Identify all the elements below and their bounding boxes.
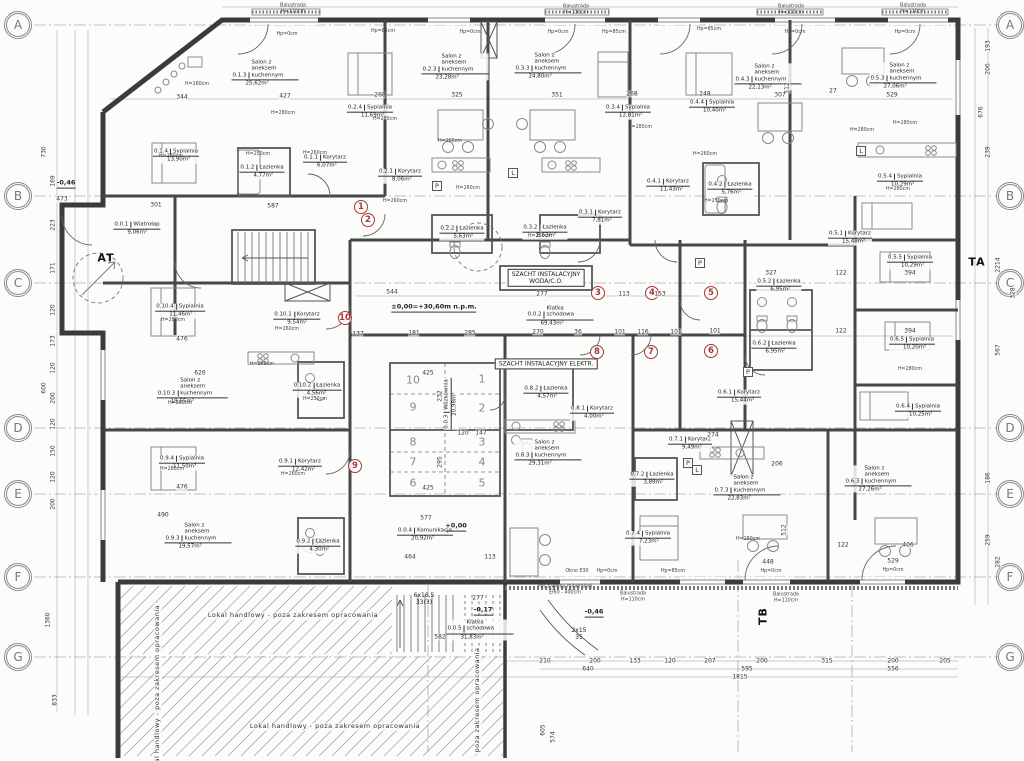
annotation: H=280cm xyxy=(850,128,874,134)
annotation: H=250cm xyxy=(528,234,552,240)
annotation: H=280cm xyxy=(898,367,922,373)
annotation: H=280cm xyxy=(736,537,760,543)
dimension-label: 171 xyxy=(50,262,57,273)
dimension-label: 833 xyxy=(52,694,59,705)
dimension-label: 206 xyxy=(771,461,782,468)
dimension-label: 133 xyxy=(629,658,640,665)
room-name: Korytarz xyxy=(848,231,871,237)
room-number: 0.6.5 xyxy=(890,337,907,343)
dimension-label: 232 xyxy=(437,390,444,401)
room-label-0-1-3: 0.1.3Salon z aneksem kuchennym25,62m² xyxy=(232,59,299,86)
room-label-0-5-3: 0.5.3Salon z aneksem kuchennym27,06m² xyxy=(870,62,937,89)
room-name: Salon z aneksem kuchennym xyxy=(185,522,231,541)
annotation: -0,46 xyxy=(57,180,76,189)
room-number: 0.6.3 xyxy=(846,478,863,484)
room-area: 4,57m² xyxy=(523,394,568,400)
room-area: 15,48m² xyxy=(828,239,872,245)
room-number: 0.5.5 xyxy=(888,255,905,261)
room-number: 0.9.1 xyxy=(279,459,296,465)
dimension-label: 268 xyxy=(626,91,637,98)
annotation: 6x16,5 33(3) xyxy=(414,592,435,606)
room-label-0-9-1: 0.9.1Korytarz12,42m² xyxy=(278,459,322,474)
room-area: 8,06m² xyxy=(378,177,422,183)
dimension-label: 101 xyxy=(614,329,625,336)
annotation: Lokal handlowy - poza zakresem opracowan… xyxy=(248,723,422,731)
annotation: H=280cm xyxy=(161,318,185,324)
dimension-label: 205 xyxy=(939,658,950,665)
storage-cell-number: 10 xyxy=(406,374,420,387)
room-number: 0.0.4 xyxy=(398,528,415,534)
dimension-label: 556 xyxy=(887,666,898,673)
room-name: Sypialnia xyxy=(897,174,922,180)
room-name: Łazienka xyxy=(771,341,795,347)
room-label-0-5-2: 0.5.2Łazienka6,95m² xyxy=(756,279,801,294)
room-label-0-3-3: 0.3.3Salon z aneksem kuchennym24,80m² xyxy=(515,52,582,79)
dimension-label: 351 xyxy=(551,92,562,99)
room-number: 0.4.4 xyxy=(690,100,707,106)
apartment-marker-2: 2 xyxy=(361,213,375,227)
grid-marker-e-right: E xyxy=(998,482,1022,506)
room-area: 11,43m² xyxy=(646,187,690,193)
dimension-label: 315 xyxy=(821,658,832,665)
annotation: H=260cm xyxy=(438,139,462,145)
dimension-label: 464 xyxy=(404,554,415,561)
grid-marker-a-left: A xyxy=(6,13,30,37)
room-label-0-6-4: 0.6.4Sypialnia10,25m² xyxy=(895,404,941,419)
room-area: 9,06m² xyxy=(113,230,160,236)
room-number: 0.7.2 xyxy=(630,472,647,478)
room-name: Łazienka xyxy=(776,279,800,285)
room-area: 6,95m² xyxy=(756,287,801,293)
room-name: Klatka schodowa xyxy=(467,620,513,633)
dimension-label: 120 xyxy=(50,362,57,373)
room-area: 22,13m² xyxy=(735,84,802,90)
room-label-0-7-1: 0.7.1Korytarz9,49m² xyxy=(668,437,712,452)
room-name: Salon z aneksem kuchennym xyxy=(442,53,488,72)
dimension-label: 239 xyxy=(985,146,992,157)
dimension-label: 36 xyxy=(574,329,582,336)
dimension-label: 605 xyxy=(540,724,547,735)
dimension-label: 285 xyxy=(464,330,475,337)
apartment-marker-10: 10 xyxy=(338,311,352,325)
room-area: 10,40m² xyxy=(689,108,735,114)
room-area: 5,63m² xyxy=(439,234,484,240)
room-label-0-1-1: 0.1.1Korytarz6,07m² xyxy=(303,155,347,170)
dimension-label: 301 xyxy=(150,202,161,209)
room-name: Wózkownia xyxy=(444,379,450,410)
storage-cell-number: 8 xyxy=(410,436,417,449)
storage-cell-number: 5 xyxy=(479,477,486,490)
annotation: Balustrada H=110cm xyxy=(620,591,646,603)
room-area: 5,76m² xyxy=(707,190,752,196)
room-area: 9,54m² xyxy=(273,320,320,326)
room-area: 6,95m² xyxy=(751,349,796,355)
room-name: Sypialnia xyxy=(179,304,204,310)
washer-mark: P xyxy=(743,367,753,377)
section-label-at: AT xyxy=(97,252,114,265)
room-label-0-0-5: 0.0.5Klatka schodowa31,83m² xyxy=(447,620,514,641)
room-name: Korytarz xyxy=(590,406,613,412)
storage-cell-number: 7 xyxy=(410,456,417,469)
room-number: 0.9.2 xyxy=(296,539,313,545)
room-name: Sypialnia xyxy=(909,337,934,343)
dimension-label: 122 xyxy=(835,328,846,335)
room-number: 0.6.4 xyxy=(896,404,913,410)
room-name: Korytarz xyxy=(598,210,621,216)
annotation: Balustrada H=110cm xyxy=(900,3,926,15)
room-label-0-10-2: 0.10.2Łazienka4,56m² xyxy=(293,383,342,398)
room-name: Łazienka xyxy=(315,539,339,545)
annotation: H=280cm xyxy=(628,125,652,131)
room-name: Sypialnia xyxy=(907,255,932,261)
room-number: 0.4.2 xyxy=(708,182,725,188)
dimension-label: 425 xyxy=(422,485,433,492)
room-area: 10,20m² xyxy=(889,345,935,351)
dimension-label: 200 xyxy=(50,498,57,509)
room-name: Salon z aneksem kuchennym xyxy=(535,439,581,458)
annotation: Balustrada H=110cm xyxy=(773,592,799,604)
room-name: Korytarz xyxy=(737,390,760,396)
section-label-ta: TA xyxy=(968,256,985,269)
dimension-label: 169 xyxy=(50,175,57,186)
apartment-marker-5: 5 xyxy=(704,286,718,300)
dimension-label: 640 xyxy=(582,666,593,673)
grid-marker-f-right: F xyxy=(998,565,1022,589)
room-number: 0.7.3 xyxy=(715,487,732,493)
fridge-mark: L xyxy=(508,168,518,178)
dimension-label: 200 xyxy=(887,658,898,665)
dimension-label: 101 xyxy=(670,329,681,336)
room-area: 27,06m² xyxy=(870,83,937,89)
room-label-0-7-2: 0.7.2Łazienka3,89m² xyxy=(629,472,674,487)
annotation: -0,17 xyxy=(474,607,493,616)
room-name: Korytarz xyxy=(398,169,421,175)
room-number: 0.2.2 xyxy=(440,226,457,232)
room-area: 29,31m² xyxy=(515,460,582,466)
dimension-label: 577 xyxy=(420,515,431,522)
section-label-tb: TB xyxy=(757,607,770,625)
dimension-label: 427 xyxy=(279,93,290,100)
dimension-label: 529 xyxy=(886,92,897,99)
dimension-label: 181 xyxy=(408,330,419,337)
room-area: 10,29m² xyxy=(887,263,933,269)
room-name: Łazienka xyxy=(727,182,751,188)
annotation: Hp=0cm xyxy=(276,32,297,38)
dimension-label: 425 xyxy=(422,370,433,377)
annotation: Hp=0cm xyxy=(760,569,781,575)
room-area: 20,98m² xyxy=(452,378,458,430)
room-area: 69,43m² xyxy=(527,320,594,326)
annotation: Balustrada H=110cm xyxy=(778,4,804,16)
room-name: Wiatrołap xyxy=(133,222,159,228)
dimension-label: 600 xyxy=(41,382,48,393)
apartment-marker-8: 8 xyxy=(590,345,604,359)
room-label-0-0-3: 0.0.3Wózkownia20,98m² xyxy=(444,378,459,430)
annotation: H=250cm xyxy=(246,152,270,158)
dimension-label: 394 xyxy=(904,270,915,277)
annotation: +0,00 xyxy=(445,523,466,532)
annotation: Lokal handlowy - poza zakresem opracowan… xyxy=(206,612,380,620)
room-area: 23,28m² xyxy=(422,74,489,80)
washer-mark: P xyxy=(695,258,705,268)
annotation: Lokal handlowy - poza zakresem opracowan… xyxy=(154,603,162,761)
room-name: Sypialnia xyxy=(179,456,204,462)
room-label-0-0-2: 0.0.2Klatka schodowa69,43m² xyxy=(527,306,594,327)
room-area: 12,81m² xyxy=(605,113,651,119)
fridge-mark: L xyxy=(692,465,702,475)
dimension-label: 544 xyxy=(386,289,397,296)
dimension-label: 1360 xyxy=(45,612,52,627)
room-number: 0.2.1 xyxy=(379,169,396,175)
storage-cell-number: 3 xyxy=(479,436,486,449)
room-area: 24,80m² xyxy=(515,73,582,79)
room-label-0-2-1: 0.2.1Korytarz8,06m² xyxy=(378,169,422,184)
room-area: 10,25m² xyxy=(895,412,941,418)
dimension-label: 406 xyxy=(902,542,913,549)
annotation: H=280cm xyxy=(886,187,910,193)
dimension-label: 120 xyxy=(50,418,57,429)
annotation: SZACHT INSTALACYJNY ELEKTR. xyxy=(495,358,598,369)
dimension-label: 344 xyxy=(176,94,187,101)
dimension-label: 147 xyxy=(475,430,486,437)
annotation: Hp=0cm xyxy=(547,30,568,36)
dimension-label: 150 xyxy=(50,445,57,456)
dimension-label: 116 xyxy=(637,329,648,336)
room-name: Salon z aneksem kuchennym xyxy=(252,59,298,78)
room-number: 0.3.3 xyxy=(516,65,533,71)
room-number: 0.6.2 xyxy=(752,341,769,347)
dimension-label: 120 xyxy=(457,430,468,437)
dimension-label: 325 xyxy=(451,92,462,99)
dimension-label: 27 xyxy=(829,88,837,95)
annotation: H=280cm xyxy=(271,111,295,117)
labels-layer: AABBCCDDEEFFGG12345678910109876123450.0.… xyxy=(0,0,1024,761)
room-label-0-10-1: 0.10.1Korytarz9,54m² xyxy=(273,312,320,327)
room-label-0-8-1: 0.8.1Korytarz4,00m² xyxy=(570,406,614,421)
room-name: Sypialnia xyxy=(625,105,650,111)
annotation: Balustrada H=110cm xyxy=(280,3,306,15)
room-label-0-6-3: 0.6.3Salon z aneksem kuchennym27,26m² xyxy=(845,465,912,492)
dimension-label: 730 xyxy=(41,146,48,157)
annotation: H=260cm xyxy=(185,82,209,88)
annotation: H=260cm xyxy=(275,327,299,333)
room-number: 0.2.3 xyxy=(423,66,440,72)
storage-cell-number: 9 xyxy=(410,401,417,414)
room-number: 0.5.3 xyxy=(871,75,888,81)
room-area: 31,83m² xyxy=(447,634,514,640)
floor-plan-sheet: AABBCCDDEEFFGG12345678910109876123450.0.… xyxy=(0,0,1024,761)
annotation: poza zakresem opracowania xyxy=(474,645,482,754)
dimension-label: 122 xyxy=(837,542,848,549)
dimension-label: 473 xyxy=(56,196,67,203)
grid-marker-d-left: D xyxy=(6,416,30,440)
room-area: 4,30m² xyxy=(295,547,340,553)
dimension-label: 582 xyxy=(434,634,445,641)
room-area: 22,83m² xyxy=(714,495,781,501)
dimension-label: 200 xyxy=(589,658,600,665)
room-name: Korytarz xyxy=(298,459,321,465)
dimension-label: 328 xyxy=(1010,287,1017,298)
room-area: 7,81m² xyxy=(578,218,622,224)
annotation: Pas z wełny mineralnej EI60 - 400cm xyxy=(538,584,593,596)
dimension-label: 512 xyxy=(784,82,791,93)
dimension-label: 137 xyxy=(352,331,363,338)
dimension-label: 259 xyxy=(985,534,992,545)
room-number: 0.10.1 xyxy=(274,312,295,318)
room-number: 0.3.2 xyxy=(523,225,540,231)
room-label-0-6-2: 0.6.2Łazienka6,95m² xyxy=(751,341,796,356)
room-number: 0.7.4 xyxy=(626,531,643,537)
annotation: Hp=85cm xyxy=(661,569,685,575)
room-label-0-1-2: 0.1.2Łazienka4,77m² xyxy=(239,165,284,180)
dimension-label: 295 xyxy=(437,456,444,467)
grid-marker-a-right: A xyxy=(998,13,1022,37)
room-label-0-5-1: 0.5.1Korytarz15,48m² xyxy=(828,231,872,246)
room-label-0-9-3: 0.9.3Salon z aneksem kuchennym19,57m² xyxy=(165,522,232,549)
room-number: 0.4.1 xyxy=(647,179,664,185)
dimension-label: 327 xyxy=(765,270,776,277)
dimension-label: 101 xyxy=(709,328,720,335)
room-number: 0.0.5 xyxy=(448,626,465,632)
annotation: H=260cm xyxy=(250,362,274,368)
room-area: 25,62m² xyxy=(232,80,299,86)
room-name: Łazienka xyxy=(543,386,567,392)
annotation: H=280cm xyxy=(893,121,917,127)
annotation: -0,46 xyxy=(585,609,604,618)
room-label-0-7-4: 0.7.4Sypialnia7,23m² xyxy=(625,531,671,546)
dimension-label: 282 xyxy=(995,556,1002,567)
annotation: Hp=85cm xyxy=(697,27,721,33)
room-name: Salon z aneksem kuchennym xyxy=(890,62,936,81)
room-label-0-4-2: 0.4.2Łazienka5,76m² xyxy=(707,182,752,197)
room-number: 0.8.2 xyxy=(524,386,541,392)
dimension-label: 200 xyxy=(50,392,57,403)
dimension-label: 120 xyxy=(664,658,675,665)
room-label-0-0-1: 0.0.1Wiatrołap9,06m² xyxy=(113,222,160,237)
dimension-label: 476 xyxy=(176,484,187,491)
room-name: Salon z aneksem kuchennym xyxy=(180,377,226,396)
room-number: 0.1.2 xyxy=(240,165,257,171)
room-number: 0.8.1 xyxy=(571,406,588,412)
room-number: 0.5.2 xyxy=(757,279,774,285)
grid-marker-g-left: G xyxy=(6,645,30,669)
room-number: 0.5.1 xyxy=(829,231,846,237)
grid-marker-f-left: F xyxy=(6,565,30,589)
dimension-label: 210 xyxy=(539,658,550,665)
room-name: Sypialnia xyxy=(709,100,734,106)
room-number: 0.4.3 xyxy=(736,76,753,82)
room-number: 0.6.1 xyxy=(718,390,735,396)
room-area: 3,89m² xyxy=(629,480,674,486)
dimension-label: 113 xyxy=(484,554,495,561)
dimension-label: 1815 xyxy=(732,674,747,681)
dimension-label: 595 xyxy=(741,666,752,673)
room-label-0-4-4: 0.4.4Sypialnia10,40m² xyxy=(689,100,735,115)
annotation: H=280cm xyxy=(168,401,192,407)
dimension-label: 270 xyxy=(532,329,543,336)
dimension-label: 394 xyxy=(904,328,915,335)
room-area: 4,77m² xyxy=(239,173,284,179)
dimension-label: 268 xyxy=(374,92,385,99)
room-label-0-8-2: 0.8.2Łazienka4,57m² xyxy=(523,386,568,401)
room-area: 6,07m² xyxy=(303,163,347,169)
room-label-0-8-3: 0.8.3Salon z aneksem kuchennym29,31m² xyxy=(515,439,582,466)
room-number: 0.10.2 xyxy=(294,383,315,389)
annotation: H=250cm xyxy=(303,397,327,403)
room-label-0-2-3: 0.2.3Salon z aneksem kuchennym23,28m² xyxy=(422,53,489,80)
apartment-marker-7: 7 xyxy=(644,345,658,359)
room-area: 7,23m² xyxy=(625,539,671,545)
room-name: Korytarz xyxy=(297,312,320,318)
room-number: 0.0.3 xyxy=(444,412,450,429)
room-name: Łazienka xyxy=(542,225,566,231)
grid-marker-g-right: G xyxy=(998,645,1022,669)
room-number: 0.9.4 xyxy=(160,456,177,462)
annotation: Hp=0cm xyxy=(784,30,805,36)
room-number: 0.8.3 xyxy=(516,452,533,458)
room-number: 0.3.1 xyxy=(579,210,596,216)
dimension-label: 567 xyxy=(995,344,1002,355)
dimension-label: 587 xyxy=(267,203,278,210)
room-name: Łazienka xyxy=(649,472,673,478)
room-number: 0.5.4 xyxy=(878,174,895,180)
annotation: Hp=85cm xyxy=(602,30,626,36)
storage-cell-number: 2 xyxy=(479,402,486,415)
dimension-label: 274 xyxy=(707,432,718,439)
room-label-0-2-2: 0.2.2Łazienka5,63m² xyxy=(439,226,484,241)
annotation: H=260cm xyxy=(383,199,407,205)
annotation: Hp=85cm xyxy=(371,29,395,35)
annotation: Okno E30 xyxy=(565,569,588,575)
annotation: 2x15 35 xyxy=(571,627,586,641)
washer-mark: P xyxy=(432,181,442,191)
room-number: 0.3.4 xyxy=(606,105,623,111)
room-label-0-6-1: 0.6.1Korytarz15,44m² xyxy=(717,390,761,405)
room-area: 20,92m² xyxy=(397,536,453,542)
room-area: 27,26m² xyxy=(845,486,912,492)
room-name: Łazienka xyxy=(316,383,340,389)
annotation: Hp=0cm xyxy=(596,569,617,575)
dimension-label: 490 xyxy=(157,512,168,519)
grid-marker-b-right: B xyxy=(998,184,1022,208)
room-label-0-6-5: 0.6.5Sypialnia10,20m² xyxy=(889,337,935,352)
dimension-label: 626 xyxy=(194,370,205,377)
dimension-label: 186 xyxy=(985,472,992,483)
annotation: Balustrada H=110cm xyxy=(563,4,589,16)
room-area: 19,57m² xyxy=(165,543,232,549)
room-label-0-9-2: 0.9.2Łazienka4,30m² xyxy=(295,539,340,554)
storage-cell-number: 4 xyxy=(479,456,486,469)
room-number: 0.10.3 xyxy=(158,390,179,396)
dimension-label: 277 xyxy=(536,291,547,298)
dimension-label: 200 xyxy=(985,63,992,74)
room-label-0-4-3: 0.4.3Salon z aneksem kuchennym22,13m² xyxy=(735,63,802,90)
dimension-label: 113 xyxy=(618,291,629,298)
room-name: Klatka schodowa xyxy=(547,306,593,319)
room-area: 4,00m² xyxy=(570,414,614,420)
dimension-label: 248 xyxy=(699,91,710,98)
dimension-label: 223 xyxy=(50,219,57,230)
annotation: Hp=0cm xyxy=(882,568,903,574)
apartment-marker-3: 3 xyxy=(591,286,605,300)
dimension-label: 120 xyxy=(50,304,57,315)
apartment-marker-9: 9 xyxy=(348,459,362,473)
annotation: H=280cm xyxy=(159,154,183,160)
room-name: Sypialnia xyxy=(367,105,392,111)
dimension-label: 122 xyxy=(835,270,846,277)
dimension-label: 277 xyxy=(472,595,483,602)
dimension-label: 207 xyxy=(704,658,715,665)
